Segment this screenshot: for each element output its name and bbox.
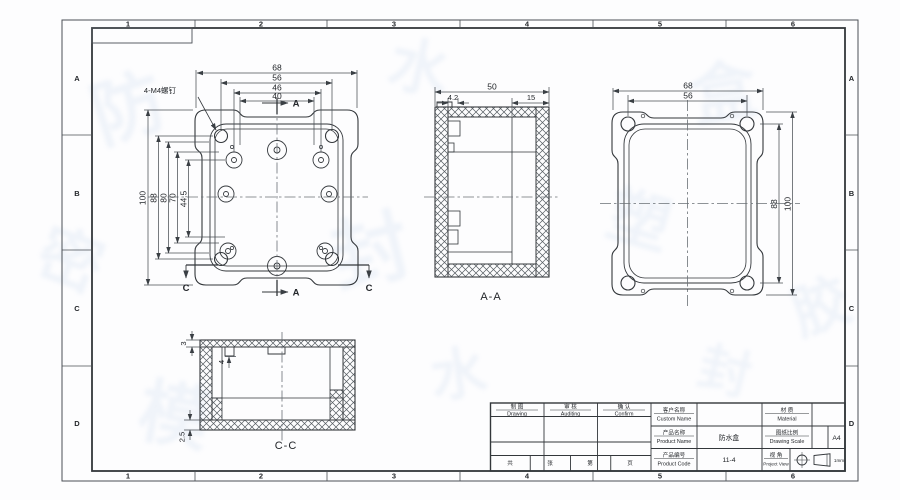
dim-2-5: 2.5 <box>178 432 187 442</box>
section-cc-texts: 3 4 2.5 C-C <box>178 341 298 452</box>
dim-100: 100 <box>783 197 793 211</box>
section-aa-view <box>424 87 560 277</box>
section-line-c <box>186 265 369 278</box>
zone-row-label: D <box>74 419 80 428</box>
tb-material-en: Material <box>777 417 796 423</box>
dim-56: 56 <box>683 91 693 101</box>
section-mark-c: C <box>183 283 190 294</box>
section-cc-label: C-C <box>275 440 298 452</box>
dim-50: 50 <box>487 82 497 92</box>
section-aa-label: A-A <box>480 291 501 303</box>
tb-product-code-value: 11-4 <box>722 457 735 464</box>
tb-paper-size: A4 <box>832 435 841 442</box>
zone-row-label: C <box>74 304 80 313</box>
zone-col-label: 6 <box>791 472 795 481</box>
back-view <box>600 88 800 308</box>
zone-col-label: 5 <box>658 472 662 481</box>
tb-product-name-zh: 产品名称 <box>663 429 686 437</box>
zone-col-label: 3 <box>392 472 396 481</box>
tb-confirm-en: Confirm <box>615 412 634 418</box>
zone-col-label: 5 <box>658 20 662 29</box>
dim-15: 15 <box>527 93 535 102</box>
dim-4-2: 4.2 <box>448 93 458 102</box>
dim-70: 70 <box>168 193 178 203</box>
first-angle-projection-icon <box>794 452 830 468</box>
zone-row-label: B <box>74 189 80 198</box>
title-block-texts: 制 图 Drawing 审 核 Auditing 确 认 Confirm 共 张… <box>507 403 844 468</box>
zone-col-label: 6 <box>791 20 795 29</box>
tb-auditing-en: Auditing <box>561 412 580 418</box>
zone-row-label: A <box>849 74 855 83</box>
back-view-texts: 68 56 88 100 <box>683 81 792 212</box>
section-cc-view <box>184 331 355 442</box>
zone-labels: 1 2 3 4 5 6 1 2 3 4 5 6 A B C D A B C D <box>74 20 855 481</box>
zone-col-label: 4 <box>525 472 530 481</box>
front-view <box>144 70 369 298</box>
drawing-canvas: 1 2 3 4 5 6 1 2 3 4 5 6 A B C D A B C D <box>0 0 900 500</box>
section-aa-bosses <box>448 121 460 244</box>
tb-drawing-en: Drawing <box>507 412 527 418</box>
zone-col-label: 3 <box>392 20 396 29</box>
tb-page-no-zh: 第 <box>587 459 593 467</box>
tb-material-zh: 材 质 <box>781 406 794 414</box>
tb-product-code-zh: 产品编号 <box>663 451 686 459</box>
tb-product-name-value: 防水盒 <box>719 433 740 442</box>
tb-drawing-zh: 制 图 <box>511 403 524 411</box>
dim-56: 56 <box>272 73 282 83</box>
drawing-sheet: 防 水 盒 密 封 塑 胶 模 水 封 1 2 3 <box>0 0 900 500</box>
section-mark-a: A <box>293 99 300 110</box>
tb-product-name-en: Product Name <box>657 439 691 445</box>
dim-68: 68 <box>683 81 693 91</box>
zone-col-label: 2 <box>259 472 263 481</box>
zone-row-label: D <box>849 419 855 428</box>
tb-scale-en: Drawing Scale <box>770 439 805 445</box>
zone-col-label: 1 <box>126 472 130 481</box>
dim-88: 88 <box>769 199 779 209</box>
tb-customer-en: Custom Name <box>657 417 691 423</box>
screw-bosses <box>218 141 337 276</box>
tb-view-angle-zh: 视 角 <box>770 451 783 459</box>
sheet-frame <box>62 20 858 481</box>
tb-page-sheet-zh: 张 <box>547 459 553 467</box>
tb-customer-zh: 客户名称 <box>663 406 686 414</box>
tb-confirm-zh: 确 认 <box>618 403 631 411</box>
section-mark-c: C <box>366 283 373 294</box>
dim-40: 40 <box>272 91 282 101</box>
dim-4: 4 <box>217 360 226 364</box>
dim-88: 88 <box>149 193 159 203</box>
zone-row-label: C <box>849 304 855 313</box>
screw-callout: 4-M4螺钉 <box>144 85 177 95</box>
zone-col-label: 1 <box>126 20 130 29</box>
tb-scale-zh: 图纸比例 <box>776 429 799 437</box>
back-dim-lines <box>613 88 797 295</box>
dim-100: 100 <box>138 191 148 205</box>
zone-row-label: A <box>74 74 80 83</box>
tb-view-angle-en: Project View <box>763 462 789 467</box>
tb-auditing-zh: 审 核 <box>564 403 577 411</box>
section-mark-a: A <box>293 288 300 299</box>
front-dim-lines <box>144 70 357 285</box>
callout-leader <box>198 97 216 130</box>
tb-unit-note: 1mm <box>834 458 844 463</box>
zone-row-label: B <box>849 189 855 198</box>
dim-44-5: 44.5 <box>179 190 189 207</box>
tb-product-code-en: Product Code <box>658 462 691 468</box>
dim-3: 3 <box>179 341 188 345</box>
zone-col-label: 2 <box>259 20 263 29</box>
dim-68: 68 <box>272 63 282 73</box>
tb-page-page-zh: 页 <box>627 460 633 467</box>
tb-page-total-zh: 共 <box>507 459 513 467</box>
